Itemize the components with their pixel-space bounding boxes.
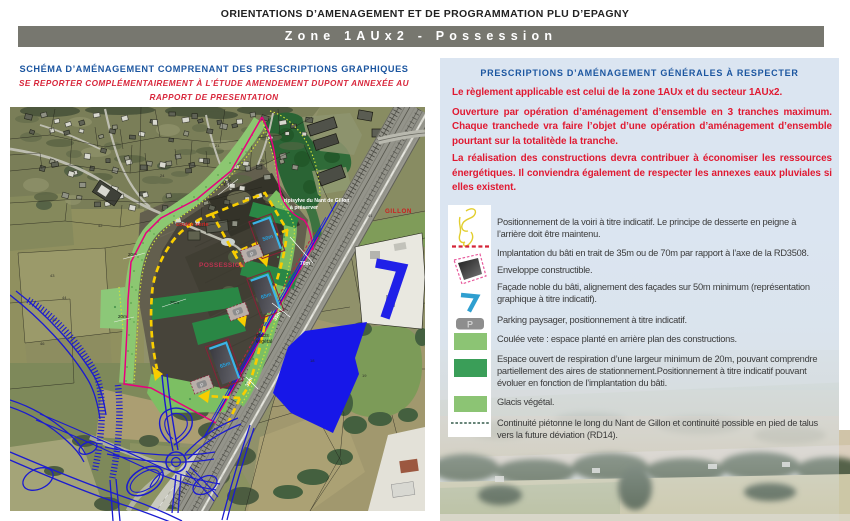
svg-text:44: 44: [62, 295, 67, 300]
svg-text:43: 43: [50, 273, 55, 278]
svg-text:20m: 20m: [118, 314, 127, 319]
svg-text:21: 21: [215, 143, 220, 148]
svg-text:P: P: [467, 320, 473, 330]
svg-text:à préserver: à préserver: [290, 205, 318, 211]
svg-text:24: 24: [160, 173, 165, 178]
svg-text:GILLON: GILLON: [385, 208, 412, 215]
svg-text:POSSESSION: POSSESSION: [199, 262, 245, 269]
svg-text:végétal: végétal: [256, 339, 272, 345]
svg-text:70m: 70m: [300, 261, 311, 267]
svg-text:41: 41: [368, 213, 373, 218]
svg-text:coulée verte: coulée verte: [176, 222, 209, 228]
svg-text:45: 45: [310, 253, 315, 258]
svg-text:42: 42: [98, 223, 103, 228]
svg-text:26: 26: [260, 158, 265, 163]
svg-text:19: 19: [362, 373, 367, 378]
svg-text:ripisylve du Nant de Gillon: ripisylve du Nant de Gillon: [284, 198, 349, 204]
svg-text:46: 46: [40, 341, 45, 346]
svg-text:18: 18: [310, 358, 315, 363]
